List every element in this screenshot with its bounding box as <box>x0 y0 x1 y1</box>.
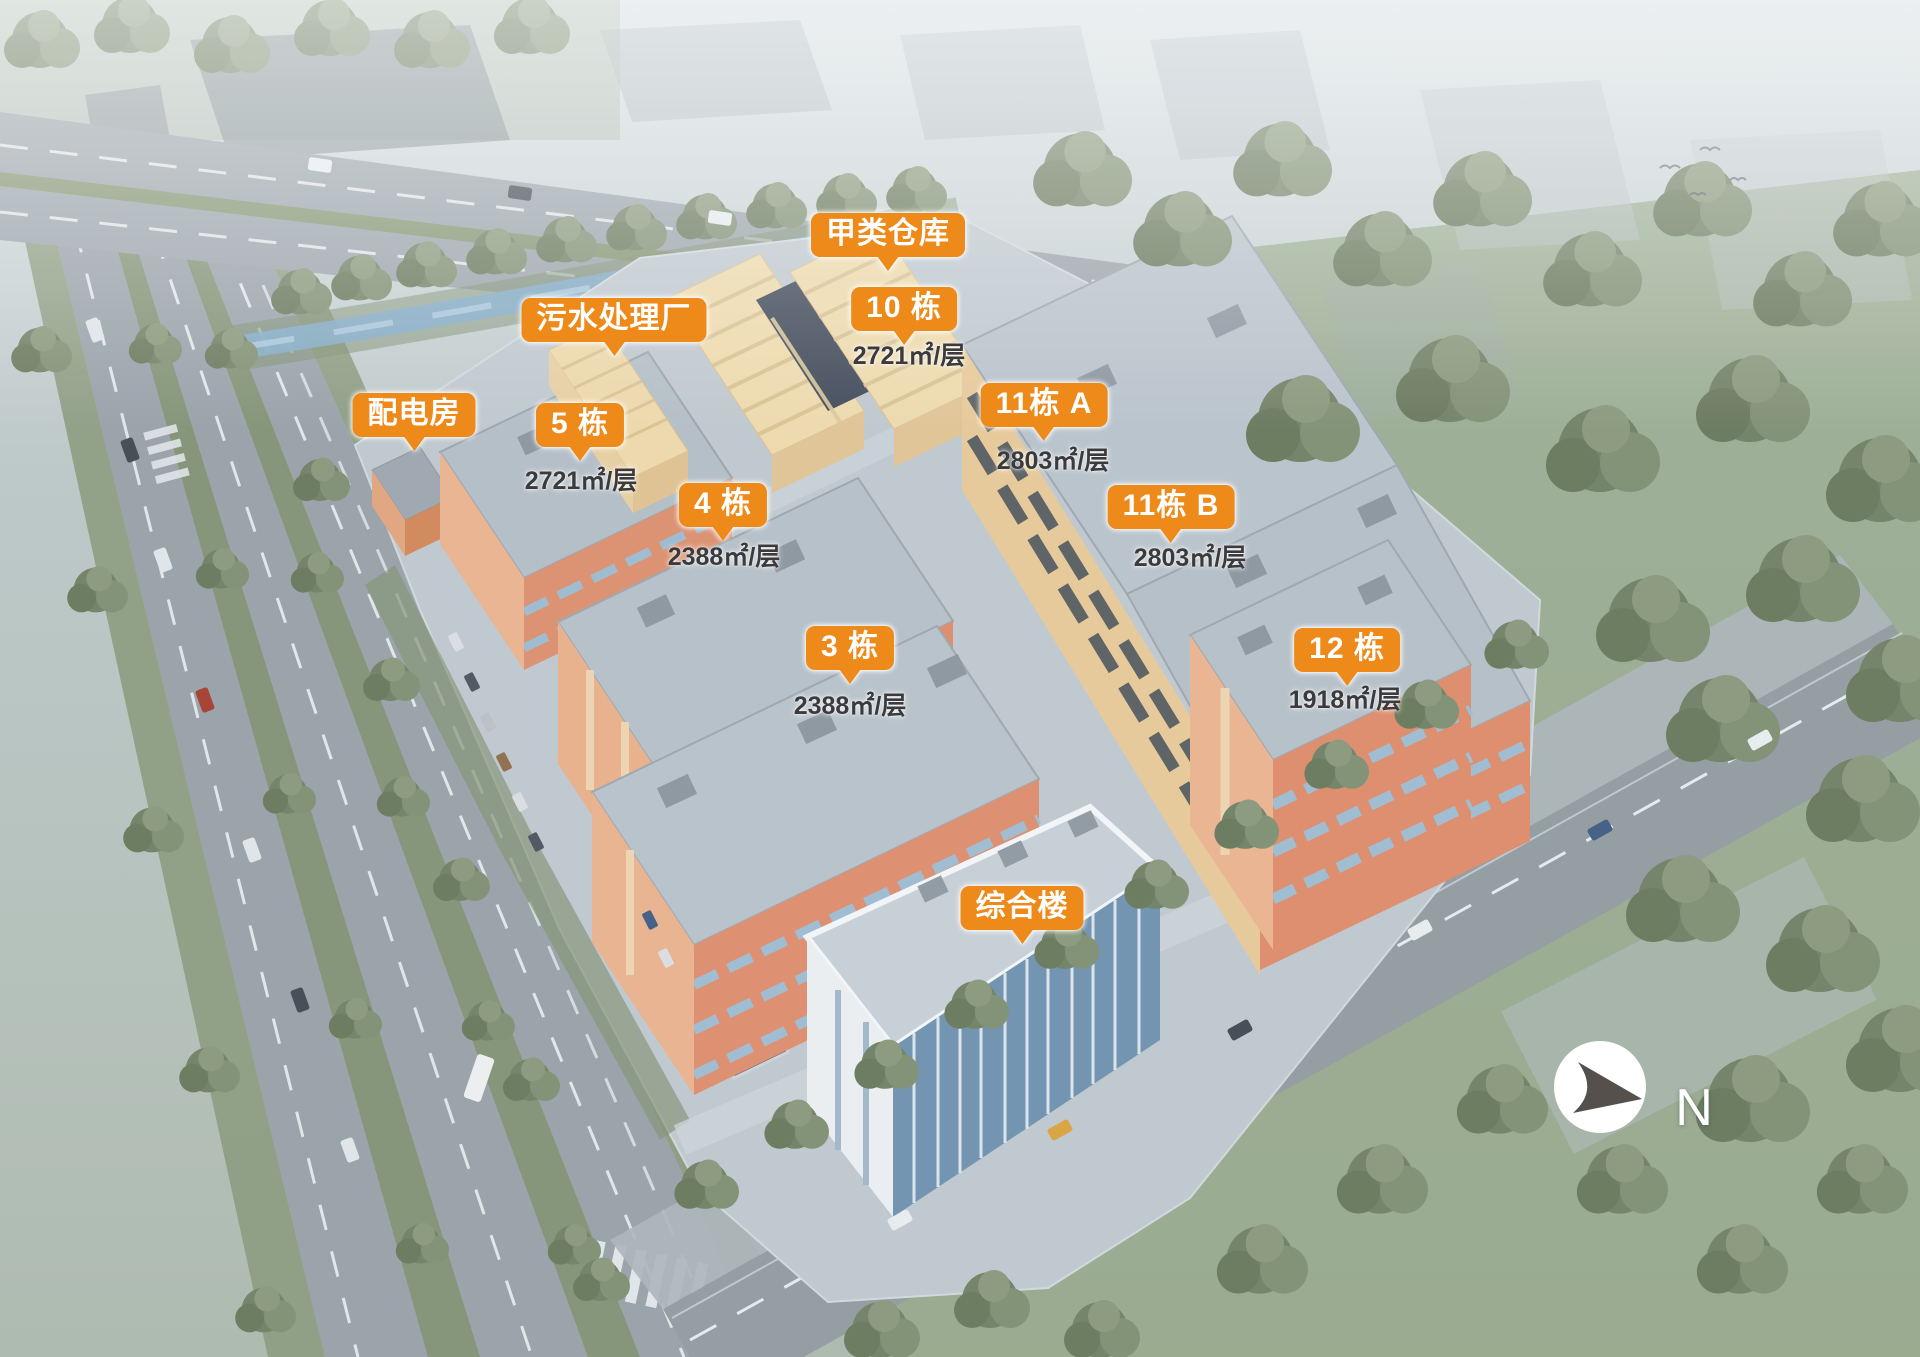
aerial-rendering <box>0 0 1920 1357</box>
label-building-4: 4 栋 <box>679 483 767 541</box>
label-text: 3 栋 <box>806 626 894 670</box>
label-class-a-warehouse: 甲类仓库 <box>811 213 965 271</box>
label-pointer <box>712 526 734 541</box>
label-text: 11栋 B <box>1108 485 1235 529</box>
label-text: 甲类仓库 <box>811 213 965 257</box>
label-pointer <box>1160 528 1182 543</box>
label-pointer <box>569 446 591 461</box>
label-text: 配电房 <box>353 393 476 437</box>
compass-north-letter: N <box>1675 1078 1713 1138</box>
label-text: 4 栋 <box>679 483 767 527</box>
label-building-11a: 11栋 A <box>981 383 1108 441</box>
area-building-4: 2388㎡/层 <box>668 537 781 573</box>
area-building-5: 2721㎡/层 <box>525 461 638 497</box>
label-pointer <box>839 669 861 684</box>
label-text: 污水处理厂 <box>522 298 707 342</box>
label-pointer <box>603 341 625 356</box>
area-building-11a: 2803㎡/层 <box>997 441 1110 477</box>
label-complex-building: 综合楼 <box>961 886 1084 944</box>
label-building-12: 12 栋 <box>1294 628 1400 686</box>
label-pointer <box>877 256 899 271</box>
label-building-10: 10 栋 <box>851 287 957 345</box>
label-building-11b: 11栋 B <box>1108 485 1235 543</box>
area-building-11b: 2803㎡/层 <box>1134 538 1247 574</box>
label-text: 综合楼 <box>961 886 1084 930</box>
label-pointer <box>403 436 425 451</box>
label-pointer <box>1033 426 1055 441</box>
label-building-3: 3 栋 <box>806 626 894 684</box>
label-text: 5 栋 <box>536 403 624 447</box>
label-sewage-plant: 污水处理厂 <box>522 298 707 356</box>
label-text: 10 栋 <box>851 287 957 331</box>
north-arrow-icon <box>1554 1041 1646 1133</box>
label-building-5: 5 栋 <box>536 403 624 461</box>
label-text: 11栋 A <box>981 383 1108 427</box>
label-text: 12 栋 <box>1294 628 1400 672</box>
aerial-site-plan: 甲类仓库 10 栋 2721㎡/层 污水处理厂 配电房 5 栋 2721㎡/层 … <box>0 0 1920 1357</box>
label-pointer <box>893 330 915 345</box>
area-building-3: 2388㎡/层 <box>794 686 907 722</box>
label-pointer <box>1011 929 1033 944</box>
label-power-room: 配电房 <box>353 393 476 451</box>
label-pointer <box>1336 671 1358 686</box>
